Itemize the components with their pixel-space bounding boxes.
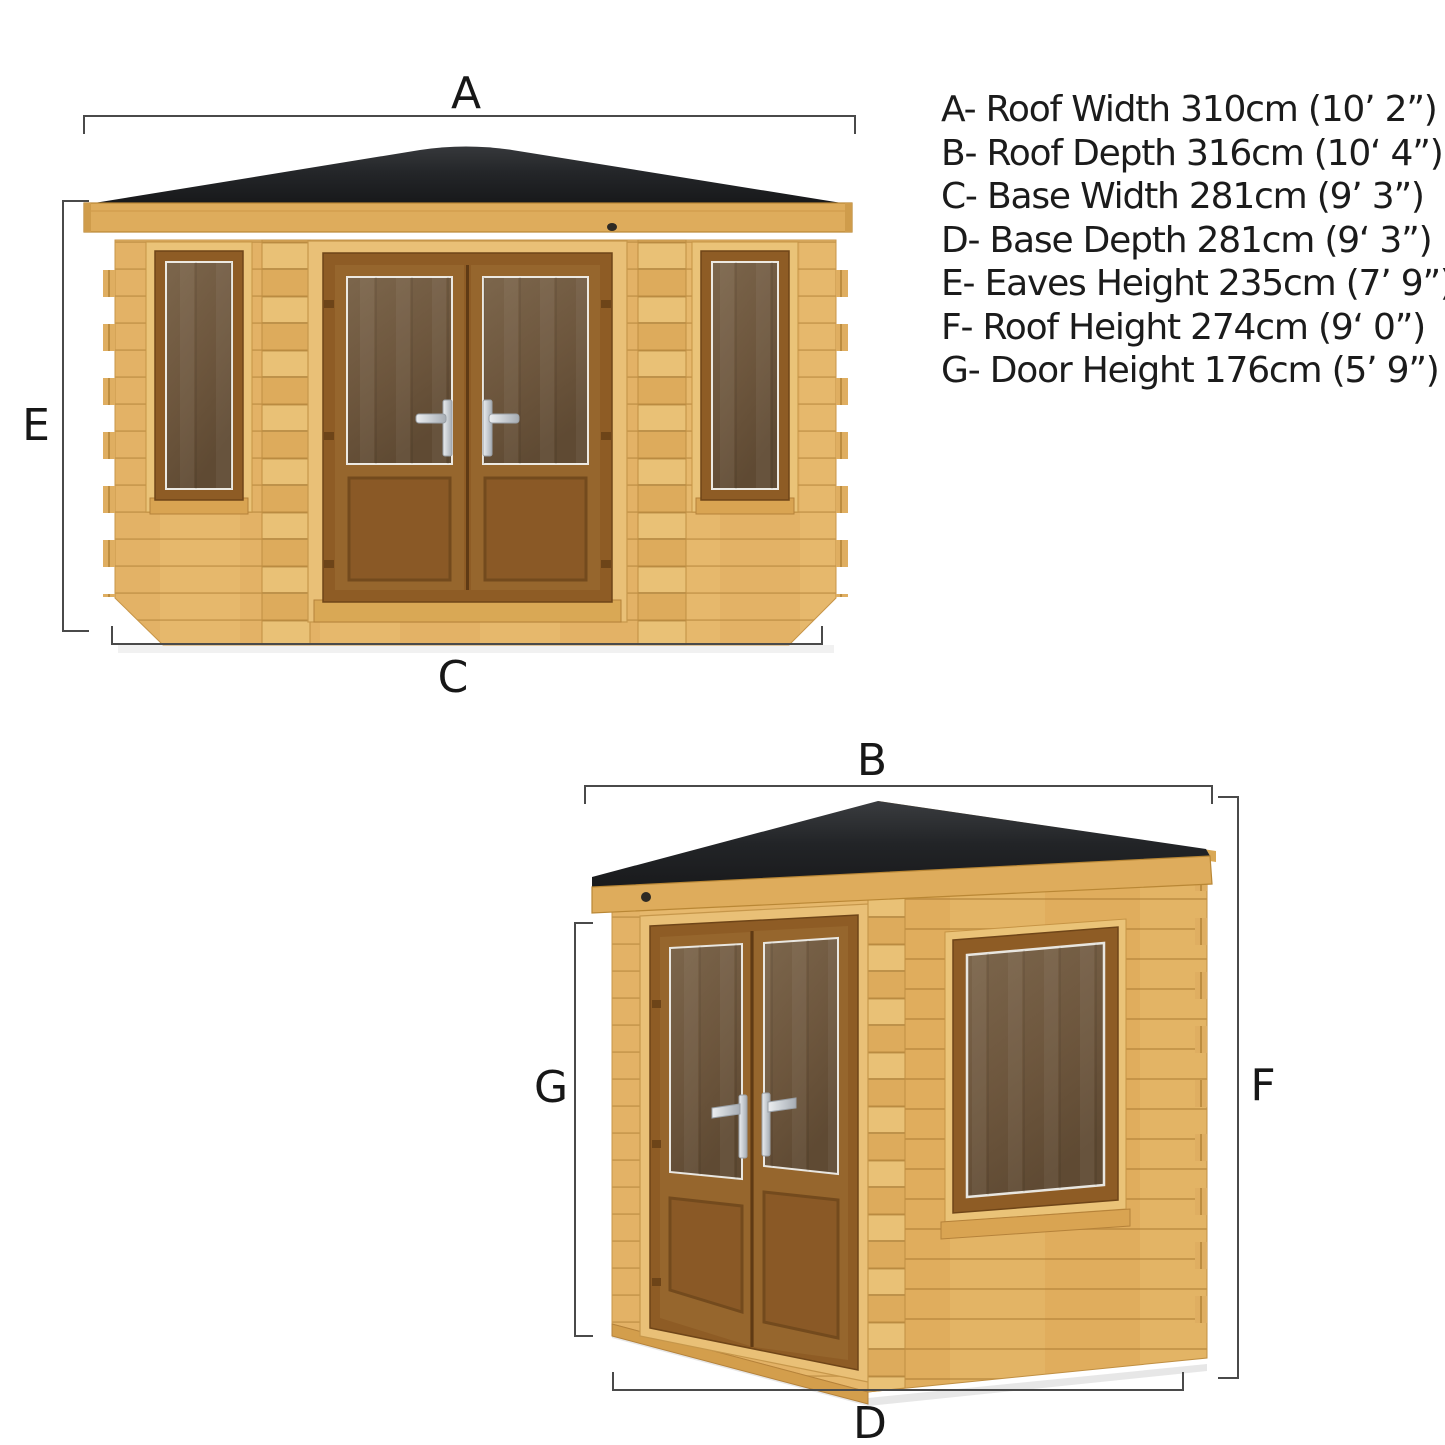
dim-roof-depth-B (585, 786, 1212, 804)
side-window-glass-streaks (967, 943, 1104, 1197)
side-door-left-glass-streaks (670, 944, 742, 1179)
dim-line-E (63, 201, 89, 631)
side-door-right-panel (764, 1192, 838, 1338)
front-door-right-handle-plate (483, 400, 492, 456)
side-eave-fixture-dot (641, 892, 651, 902)
spec-line-roof-width: A- Roof Width 310cm (10’ 2”) (941, 88, 1445, 132)
front-fascia-right-cap (845, 203, 852, 232)
front-left-corner-logs (262, 240, 310, 645)
front-roof-felt (88, 147, 848, 205)
diagram-canvas: A E C B G F D A- Roof Width 310cm (10’ 2… (0, 0, 1445, 1445)
front-door-right-panel (485, 478, 586, 580)
front-right-corner-logs (638, 240, 686, 645)
front-door-right-handle-lever (489, 414, 519, 423)
front-door-left-glass-streaks (347, 277, 452, 464)
dim-letter-B: B (857, 735, 887, 786)
front-door-left-handle-plate (443, 400, 452, 456)
spec-line-eaves-height: E- Eaves Height 235cm (7’ 9”) (941, 262, 1445, 306)
dim-letter-F: F (1250, 1060, 1275, 1111)
front-roof (84, 147, 852, 233)
spec-line-base-width: C- Base Width 281cm (9’ 3”) (941, 175, 1445, 219)
spec-line-base-depth: D- Base Depth 281cm (9‘ 3”) (941, 219, 1445, 263)
front-door-step (314, 600, 621, 622)
front-door-left-handle-lever (416, 414, 446, 423)
dim-door-height-G (575, 923, 593, 1336)
spec-line-roof-depth: B- Roof Depth 316cm (10‘ 4”) (941, 132, 1445, 176)
front-right-window-glass-streaks (712, 262, 778, 489)
front-view (84, 147, 852, 654)
front-left-window-glass-streaks (166, 262, 232, 489)
front-ground-shadow (118, 645, 834, 653)
front-eave-fixture-dot (607, 223, 617, 231)
side-door-right-glass-streaks (764, 938, 838, 1174)
dim-line-G (575, 923, 593, 1336)
dim-letter-E: E (22, 400, 50, 451)
front-door-left-panel (349, 478, 450, 580)
front-right-log-edge (836, 245, 848, 597)
side-window (941, 919, 1130, 1239)
dimension-spec-list: A- Roof Width 310cm (10’ 2”) B- Roof Dep… (941, 88, 1445, 393)
dim-letter-A: A (451, 68, 481, 119)
front-doors (308, 241, 627, 622)
front-fascia-left-cap (84, 203, 91, 232)
side-doors (640, 904, 868, 1382)
side-view (592, 801, 1216, 1406)
dim-letter-C: C (438, 652, 469, 703)
dim-letter-G: G (534, 1062, 568, 1113)
front-right-window (692, 242, 798, 514)
front-left-window (146, 242, 252, 514)
dim-line-B (585, 786, 1212, 804)
dim-eaves-height-E (63, 201, 89, 631)
spec-line-roof-height: F- Roof Height 274cm (9‘ 0”) (941, 306, 1445, 350)
front-roof-fascia (84, 203, 852, 232)
side-right-log-edge (1195, 880, 1207, 1350)
dim-letter-D: D (853, 1398, 887, 1445)
dim-roof-height-F (1218, 797, 1238, 1378)
side-corner-logs (868, 895, 905, 1392)
spec-line-door-height: G- Door Height 176cm (5’ 9”) (941, 349, 1445, 393)
front-left-log-edge (103, 245, 115, 597)
front-door-right-glass-streaks (483, 277, 588, 464)
dim-line-F (1218, 797, 1238, 1378)
